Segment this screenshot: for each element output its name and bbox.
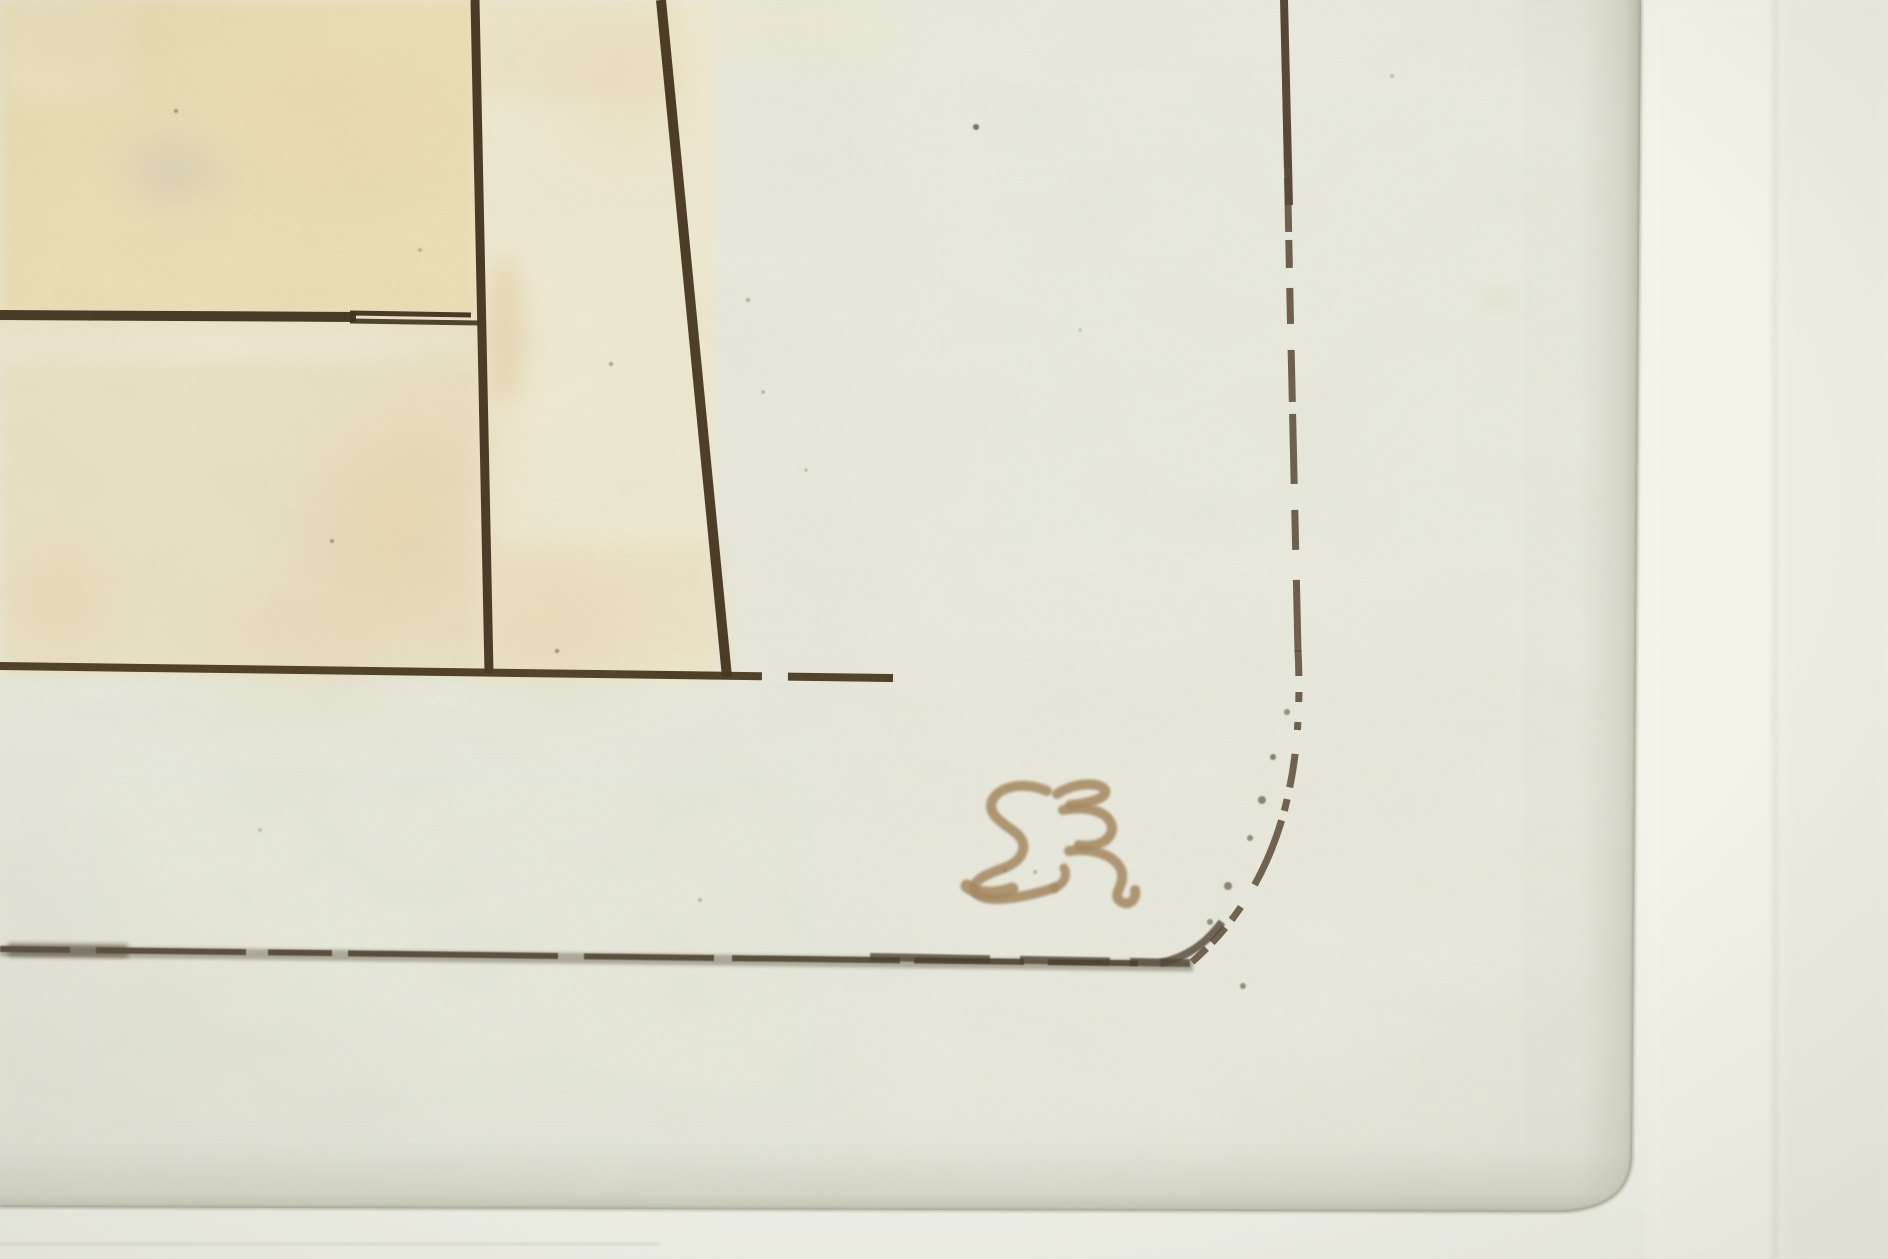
photograph-of-etching-corner: SƐ <box>0 0 1888 1259</box>
vignette <box>0 0 1888 1259</box>
artwork-photo <box>0 0 1888 1259</box>
